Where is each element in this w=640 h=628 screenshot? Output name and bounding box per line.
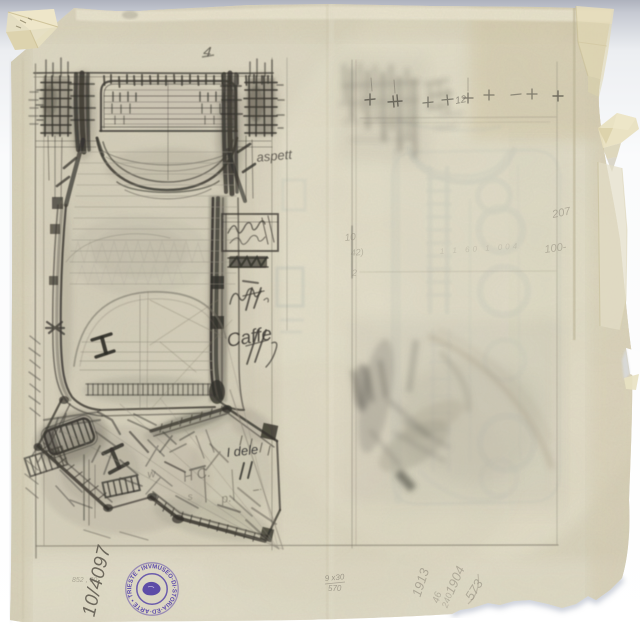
svg-text:10: 10 [344,232,357,244]
svg-text:9 x30: 9 x30 [324,572,345,583]
svg-text:aspett: aspett [256,147,294,165]
svg-text:2: 2 [351,268,357,278]
svg-text:42): 42) [350,247,364,258]
svg-text:570: 570 [328,584,342,593]
